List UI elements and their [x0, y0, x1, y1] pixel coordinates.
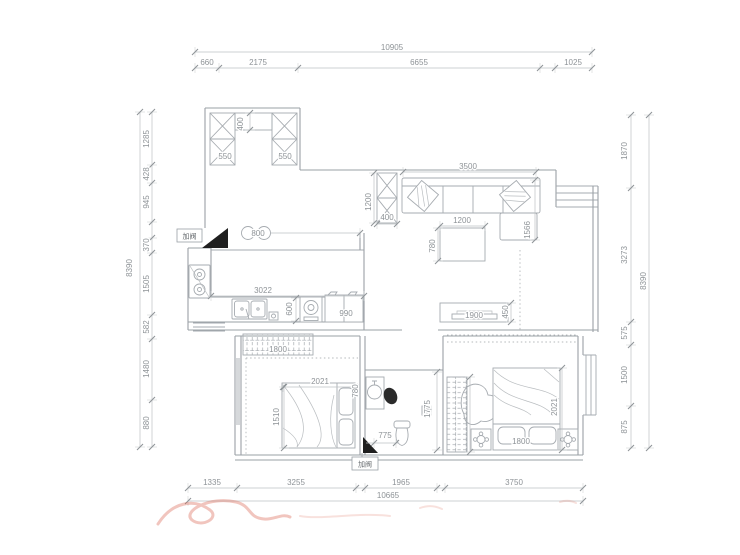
washing-machine — [300, 297, 322, 322]
dim-label: 3022 — [254, 286, 272, 295]
dim-label: 1870 — [620, 142, 629, 160]
balcony-window — [556, 186, 598, 207]
dim-label: 550 — [278, 152, 292, 161]
nightstand — [558, 429, 578, 450]
floor-drain — [269, 312, 278, 320]
dim-label: 1965 — [392, 478, 410, 487]
dim-label: 450 — [501, 305, 510, 319]
entrance-marker: 加阀 — [177, 228, 228, 248]
dim-label: 990 — [339, 309, 353, 318]
dim-label: 6655 — [410, 58, 428, 67]
floor-plan-canvas: 加阀 加阀 1090566021756655102583901285428945… — [0, 0, 740, 555]
dim-label: 775 — [378, 431, 392, 440]
dim-label: 600 — [285, 302, 294, 316]
valve-label: 加阀 — [358, 460, 372, 469]
dim-label: 1480 — [142, 360, 151, 378]
dim-label: 1025 — [564, 58, 582, 67]
dim-label: 660 — [200, 58, 214, 67]
dim-label: 1335 — [203, 478, 221, 487]
dim-label: 800 — [251, 229, 265, 238]
nightstand — [471, 429, 491, 450]
dim-label: 400 — [236, 117, 245, 131]
dim-label: 1510 — [272, 408, 281, 426]
dim-label: 3500 — [459, 162, 477, 171]
dim-label: 3750 — [505, 478, 523, 487]
floor-plan-page: 加阀 加阀 1090566021756655102583901285428945… — [0, 0, 740, 555]
stove — [189, 265, 210, 298]
dim-label: 945 — [142, 195, 151, 209]
bed — [282, 383, 355, 448]
dim-label: 1505 — [142, 275, 151, 293]
coffee-table — [440, 228, 485, 261]
dim-label: 8390 — [125, 259, 134, 277]
bedroom-left — [243, 334, 355, 448]
dim-label: 875 — [620, 420, 629, 434]
dim-label: 3273 — [620, 246, 629, 264]
dim-label: 2021 — [550, 398, 559, 416]
dim-label: 550 — [218, 152, 232, 161]
living-room — [377, 173, 540, 322]
dim-label: 3255 — [287, 478, 305, 487]
dim-label: 575 — [620, 326, 629, 340]
dim-label: 780 — [351, 384, 360, 398]
dim-label: 10905 — [381, 43, 404, 52]
dim-label: 1775 — [423, 400, 432, 418]
dim-label: 1200 — [364, 193, 373, 211]
dim-label: 428 — [142, 167, 151, 181]
dim-label: 582 — [142, 320, 151, 334]
sink — [232, 299, 267, 319]
dim-label: 1500 — [620, 366, 629, 384]
bedroom1-window — [237, 358, 239, 425]
dim-label: 370 — [142, 238, 151, 252]
dim-label: 1285 — [142, 130, 151, 148]
washbasin — [366, 377, 384, 409]
valve-label: 加阀 — [183, 232, 197, 241]
dim-label: 1900 — [465, 311, 483, 320]
sofa — [402, 178, 540, 240]
bathroom — [366, 377, 431, 446]
bedroom2-window — [583, 355, 596, 415]
dim-label: 8390 — [639, 272, 648, 290]
dim-label: 10665 — [377, 491, 400, 500]
dim-label: 2175 — [249, 58, 267, 67]
dim-label: 1800 — [269, 345, 287, 354]
dim-label: 780 — [428, 239, 437, 253]
watermark — [158, 501, 576, 524]
triangle-marker — [202, 228, 228, 248]
dim-label: 1800 — [512, 437, 530, 446]
dim-label: 1200 — [453, 216, 471, 225]
dim-label: 2021 — [311, 377, 329, 386]
dim-label: 1566 — [523, 221, 532, 239]
dim-label: 400 — [380, 213, 394, 222]
dim-label: 880 — [142, 416, 151, 430]
